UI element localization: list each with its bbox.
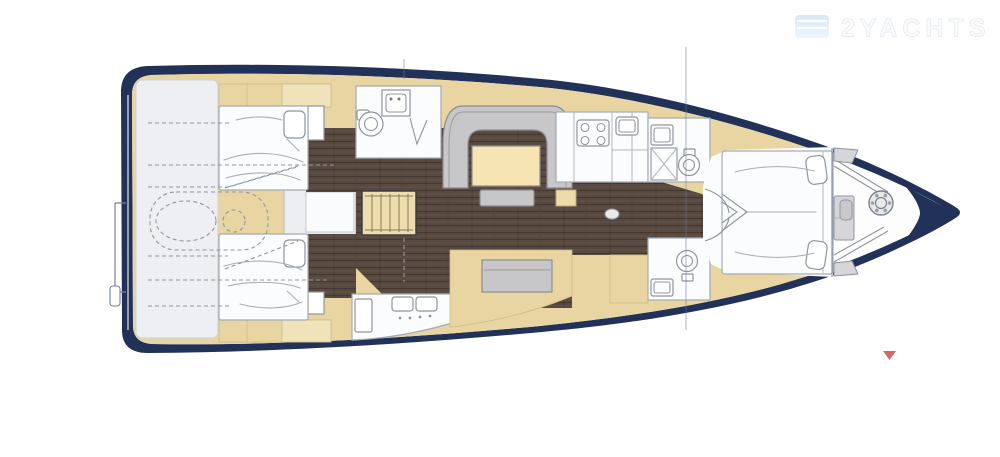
stove-icon xyxy=(577,120,609,146)
galley-sink-icon xyxy=(616,117,638,135)
lockers-light xyxy=(282,320,331,342)
aft-port-floor xyxy=(306,234,358,298)
lockers-light xyxy=(282,84,331,107)
aft-head xyxy=(356,86,441,158)
platform-latch xyxy=(110,286,120,306)
bedside-shelf xyxy=(308,106,324,140)
forward-head-starboard xyxy=(648,118,710,182)
watermark-text: 2YACHTS xyxy=(841,15,990,43)
console-top xyxy=(306,192,354,232)
yacht-deck-plan: 2YACHTS xyxy=(0,0,1000,457)
pillow xyxy=(805,240,828,270)
sink-icon xyxy=(651,125,673,145)
owners-cabin xyxy=(703,147,833,277)
appliance xyxy=(355,299,372,332)
red-marker-icon xyxy=(883,351,896,360)
tender-garage xyxy=(136,80,218,338)
anchor-windlass-icon xyxy=(869,191,893,215)
side-cabinet xyxy=(556,190,576,206)
sink-icon xyxy=(651,279,673,296)
bow-fitting xyxy=(840,200,852,220)
pillow xyxy=(284,240,305,267)
watermark-flag-icon xyxy=(795,15,829,38)
cabinet xyxy=(610,255,648,303)
watermark: 2YACHTS xyxy=(795,15,990,43)
salon-stool xyxy=(480,190,534,206)
sink-icon xyxy=(382,90,410,116)
pillow xyxy=(284,111,305,138)
settee-seat xyxy=(482,260,552,292)
aft-console xyxy=(284,189,356,235)
floor-hatch xyxy=(605,209,619,219)
salon-table xyxy=(472,146,540,186)
bedside-shelf xyxy=(308,292,324,314)
